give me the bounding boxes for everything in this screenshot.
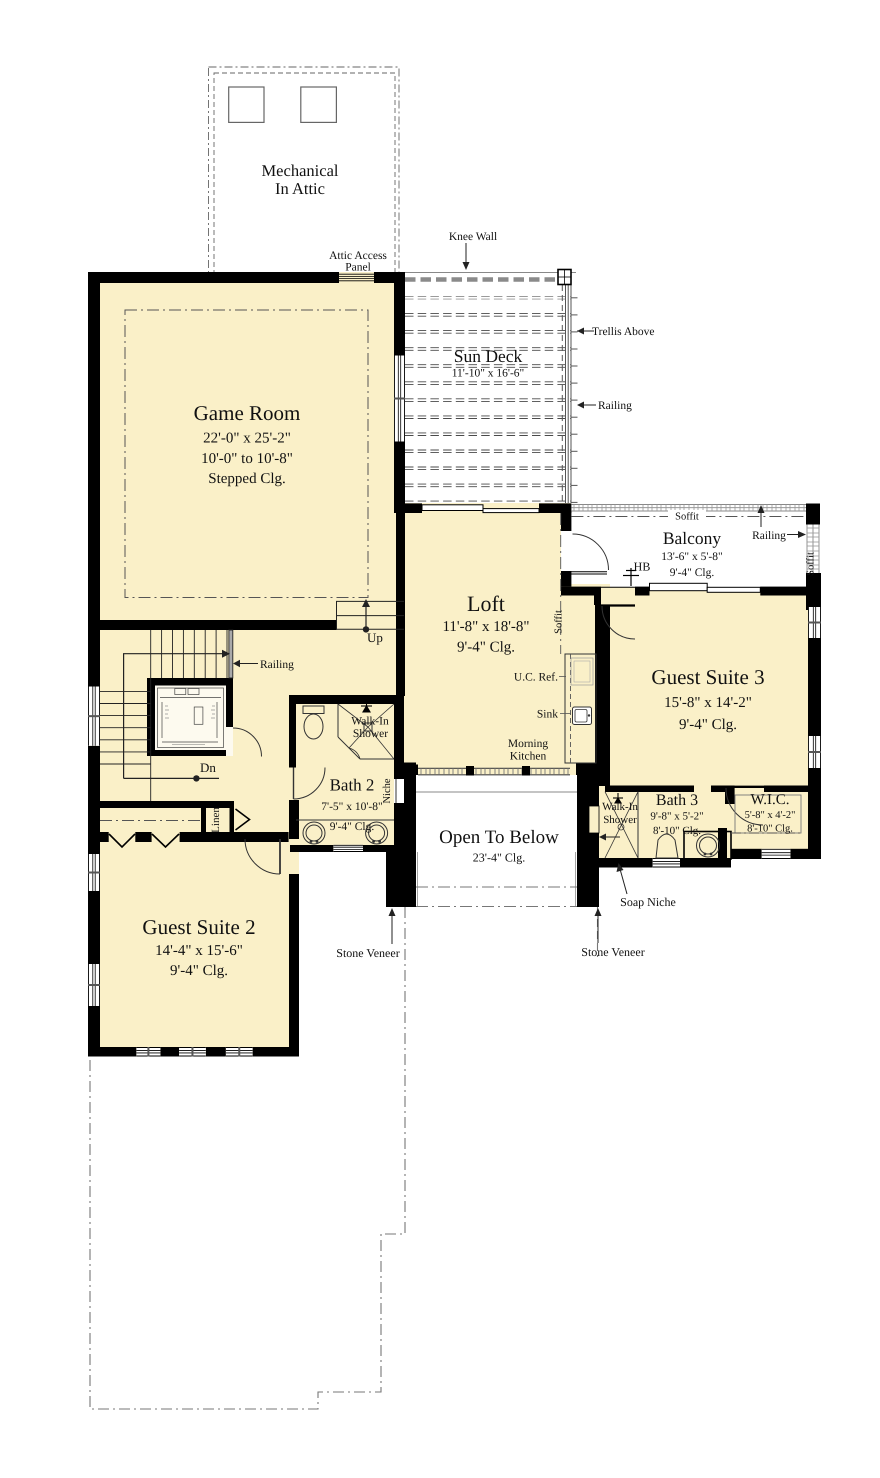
svg-text:Soffit: Soffit [806, 552, 817, 576]
svg-text:Knee Wall: Knee Wall [449, 231, 497, 243]
svg-text:In Attic: In Attic [275, 179, 325, 198]
svg-text:Guest Suite 2: Guest Suite 2 [142, 915, 255, 939]
svg-text:5'-8" x 4'-2": 5'-8" x 4'-2" [745, 810, 796, 821]
svg-text:Stepped Clg.: Stepped Clg. [208, 471, 286, 487]
svg-text:10'-0" to 10'-8": 10'-0" to 10'-8" [201, 451, 293, 467]
svg-text:9'-4" Clg.: 9'-4" Clg. [330, 821, 375, 833]
svg-text:Railing: Railing [260, 659, 294, 671]
svg-text:Sun Deck: Sun Deck [454, 346, 523, 366]
svg-text:15'-8" x 14'-2": 15'-8" x 14'-2" [664, 695, 752, 711]
svg-text:8'-10" Clg.: 8'-10" Clg. [653, 825, 701, 837]
svg-text:Bath 2: Bath 2 [330, 776, 375, 795]
svg-text:Open To Below: Open To Below [439, 827, 559, 848]
svg-text:Stone Veneer: Stone Veneer [581, 945, 644, 959]
svg-text:Linen: Linen [210, 807, 222, 833]
svg-text:HB: HB [634, 560, 651, 574]
svg-text:Mechanical: Mechanical [262, 161, 339, 180]
svg-text:9'-4" Clg.: 9'-4" Clg. [457, 640, 515, 656]
svg-text:Sink: Sink [537, 709, 558, 721]
svg-text:Soffit: Soffit [554, 610, 565, 634]
svg-text:Shower: Shower [603, 814, 637, 826]
svg-text:9'-4" Clg.: 9'-4" Clg. [679, 717, 737, 733]
svg-text:Trellis Above: Trellis Above [592, 326, 655, 338]
svg-text:Kitchen: Kitchen [510, 751, 547, 763]
svg-text:Morning: Morning [508, 738, 549, 750]
svg-text:Game Room: Game Room [194, 401, 301, 425]
svg-text:11'-10" x 16'-6": 11'-10" x 16'-6" [452, 368, 525, 380]
svg-text:9'-8" x 5'-2": 9'-8" x 5'-2" [650, 811, 703, 823]
svg-text:7'-5" x 10'-8": 7'-5" x 10'-8" [321, 801, 382, 813]
svg-text:Loft: Loft [467, 591, 505, 616]
svg-text:Railing: Railing [752, 530, 786, 542]
svg-text:Walk-In: Walk-In [351, 716, 389, 728]
svg-text:Balcony: Balcony [663, 528, 722, 548]
svg-text:Soap Niche: Soap Niche [620, 895, 676, 909]
svg-text:Up: Up [367, 630, 383, 645]
svg-text:U.C. Ref.: U.C. Ref. [514, 672, 558, 684]
svg-text:Railing: Railing [598, 400, 632, 412]
svg-text:9'-4" Clg.: 9'-4" Clg. [670, 567, 715, 579]
svg-text:Bath 3: Bath 3 [656, 792, 698, 809]
svg-text:23'-4" Clg.: 23'-4" Clg. [473, 851, 525, 865]
svg-text:22'-0" x 25'-2": 22'-0" x 25'-2" [203, 431, 291, 447]
svg-text:Dn: Dn [200, 760, 216, 775]
svg-text:Stone Veneer: Stone Veneer [336, 946, 399, 960]
svg-text:13'-6" x 5'-8": 13'-6" x 5'-8" [661, 551, 722, 563]
svg-text:8'-10" Clg.: 8'-10" Clg. [747, 824, 793, 835]
svg-text:14'-4" x 15'-6": 14'-4" x 15'-6" [155, 943, 243, 959]
svg-text:W.I.C.: W.I.C. [750, 792, 789, 808]
svg-text:Shower: Shower [353, 728, 388, 740]
svg-text:Soffit: Soffit [675, 512, 699, 523]
svg-text:Attic Access: Attic Access [329, 250, 387, 262]
svg-text:11'-8" x 18'-8": 11'-8" x 18'-8" [442, 619, 529, 635]
svg-text:Guest Suite 3: Guest Suite 3 [651, 665, 764, 689]
svg-text:Niche: Niche [382, 778, 393, 803]
svg-text:Walk-In: Walk-In [602, 801, 638, 813]
svg-text:Panel: Panel [345, 262, 371, 274]
svg-text:9'-4" Clg.: 9'-4" Clg. [170, 963, 228, 979]
